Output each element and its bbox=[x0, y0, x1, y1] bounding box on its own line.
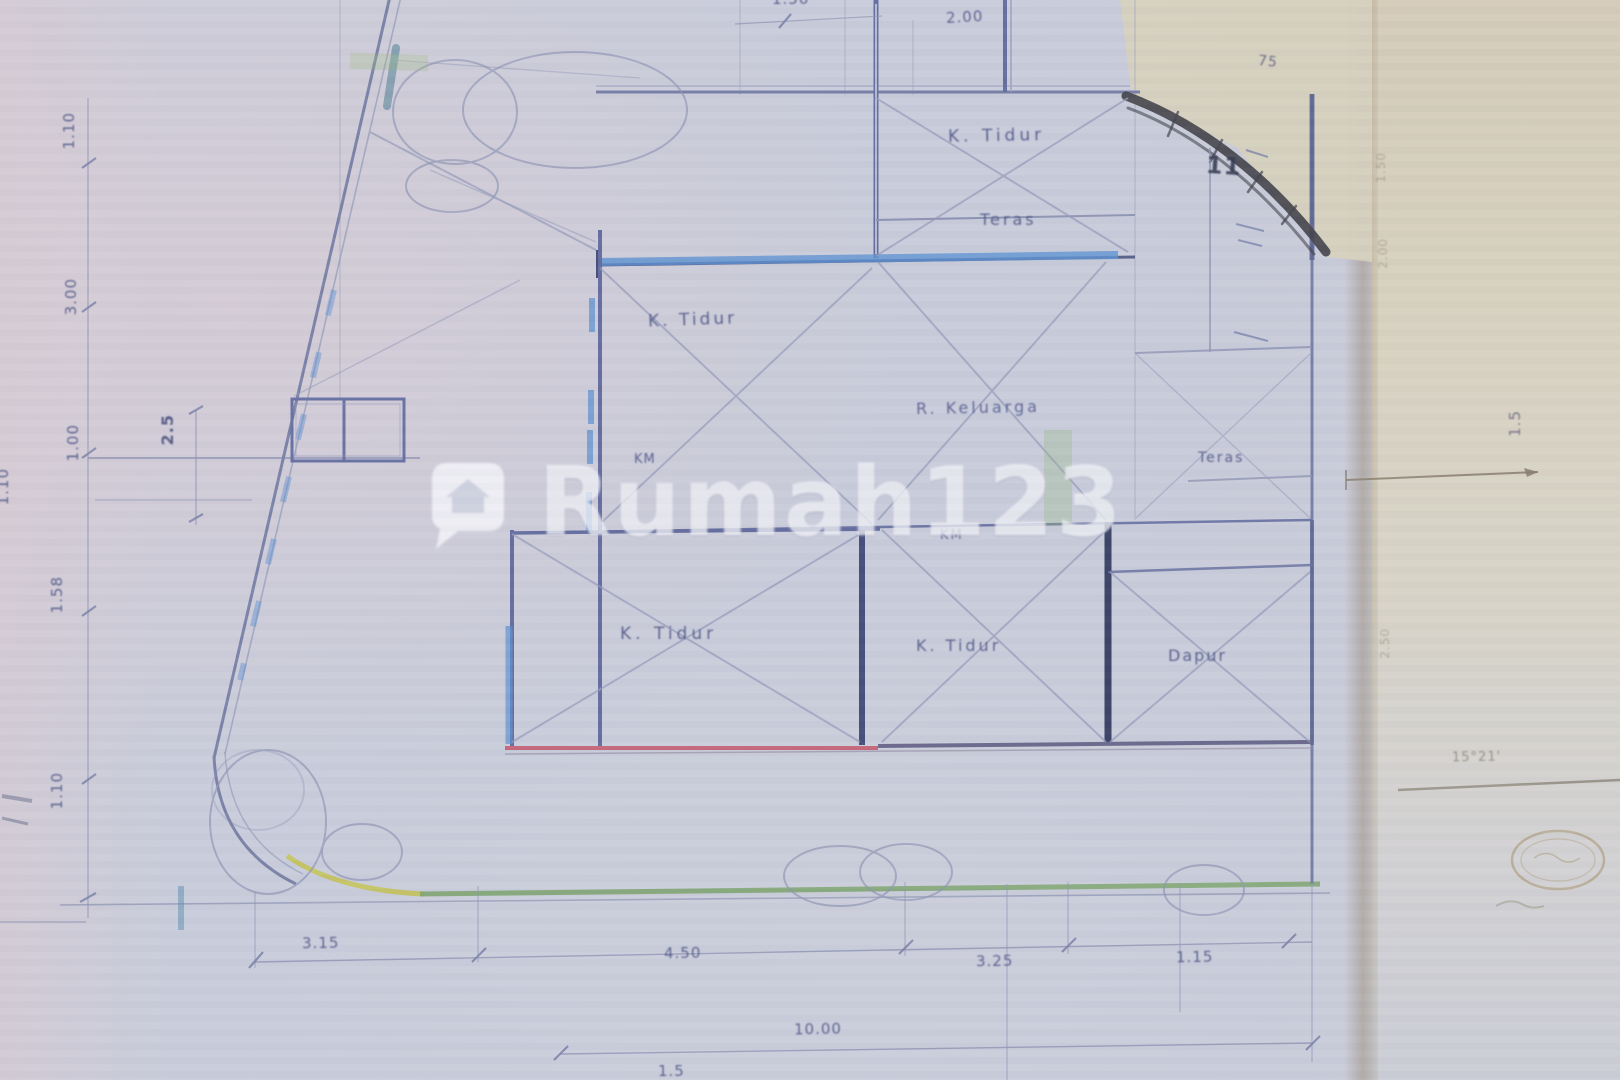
dim-top-a: 1.50 bbox=[772, 0, 809, 8]
section-mark: 11 bbox=[1205, 151, 1242, 181]
dim-strip-c: 2.50 bbox=[1378, 628, 1392, 659]
dim-left-small-a: 2.5 bbox=[158, 414, 177, 445]
room-label-bedroom-bottom-left: K. Tidur bbox=[620, 624, 717, 644]
dim-bottom-3: 3.25 bbox=[976, 952, 1014, 971]
dim-top-b: 2.00 bbox=[946, 7, 984, 27]
dim-bottom-2: 4.50 bbox=[664, 944, 702, 963]
dim-left-lower: 1.58 bbox=[48, 576, 66, 613]
dim-bottom-4: 1.15 bbox=[1176, 948, 1214, 967]
dim-top-right: 75 bbox=[1257, 53, 1278, 71]
dim-strip-a: 1.50 bbox=[1374, 152, 1388, 183]
room-label-bedroom-top: K. Tidur bbox=[948, 125, 1045, 147]
dim-bottom-partial: 1.5 bbox=[658, 1062, 685, 1080]
dim-left-top: 1.10 bbox=[60, 112, 78, 149]
room-label-terrace-right: Teras bbox=[1198, 450, 1244, 466]
dim-left-small-b: 1.00 bbox=[64, 424, 82, 461]
stamp-icon bbox=[1512, 831, 1604, 889]
room-label-bedroom-bottom-center: K. Tidur bbox=[916, 636, 1001, 655]
floorplan-photo: K. Tidur Teras K. Tidur R. Keluarga KM K… bbox=[0, 0, 1620, 1080]
dim-left-upper: 3.00 bbox=[62, 278, 80, 315]
angle-note: 15°21' bbox=[1452, 750, 1501, 766]
dim-far-left: 1.10 bbox=[0, 468, 12, 505]
watermark-text: Rumah123 bbox=[538, 448, 1124, 558]
rumah123-watermark: Rumah123 bbox=[418, 448, 1124, 558]
dim-bottom-total: 10.00 bbox=[794, 1020, 842, 1039]
dim-strip-b: 2.00 bbox=[1376, 238, 1390, 269]
room-label-kitchen: Dapur bbox=[1168, 646, 1227, 665]
room-label-terrace-top: Teras bbox=[980, 210, 1037, 229]
room-label-family-room: R. Keluarga bbox=[916, 397, 1040, 418]
room-label-bedroom-mid: K. Tidur bbox=[648, 308, 738, 331]
dim-right-rot: 1.5 bbox=[1506, 410, 1524, 437]
dim-bottom-1: 3.15 bbox=[302, 934, 340, 953]
house-logo-icon bbox=[418, 449, 518, 557]
dim-left-bottom: 1.10 bbox=[48, 772, 66, 809]
